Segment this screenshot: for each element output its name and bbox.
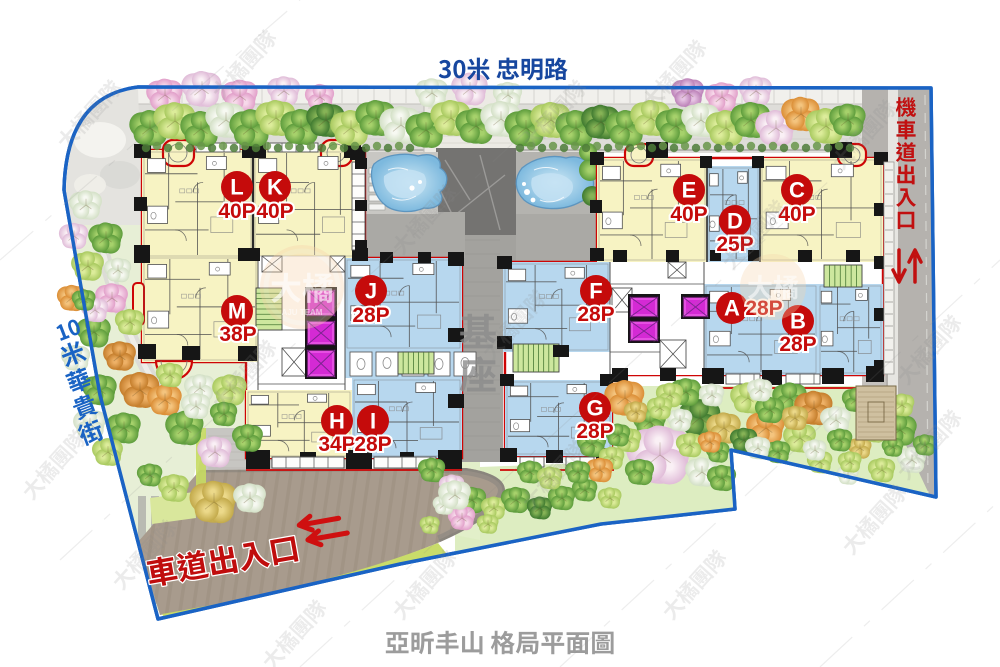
svg-text:28P: 28P: [779, 333, 816, 356]
svg-text:I: I: [370, 409, 376, 434]
svg-text:40P: 40P: [218, 200, 255, 223]
svg-text:E: E: [682, 178, 697, 203]
svg-text:F: F: [589, 279, 602, 304]
svg-text:38P: 38P: [219, 323, 256, 346]
svg-text:L: L: [230, 175, 243, 200]
svg-text:34P: 34P: [318, 433, 355, 456]
svg-text:28P: 28P: [354, 433, 391, 456]
svg-text:G: G: [586, 396, 603, 421]
svg-text:A: A: [724, 296, 740, 321]
svg-text:40P: 40P: [670, 203, 707, 226]
svg-text:D: D: [727, 209, 743, 234]
svg-text:C: C: [789, 178, 805, 203]
svg-text:28P: 28P: [577, 303, 614, 326]
svg-text:J: J: [365, 279, 377, 304]
svg-text:H: H: [329, 409, 345, 434]
svg-text:M: M: [228, 299, 246, 324]
svg-text:AJU TEAM: AJU TEAM: [282, 308, 323, 317]
svg-text:40P: 40P: [256, 200, 293, 223]
svg-text:28P: 28P: [352, 304, 389, 327]
svg-text:28P: 28P: [576, 420, 613, 443]
svg-text:K: K: [267, 175, 283, 200]
